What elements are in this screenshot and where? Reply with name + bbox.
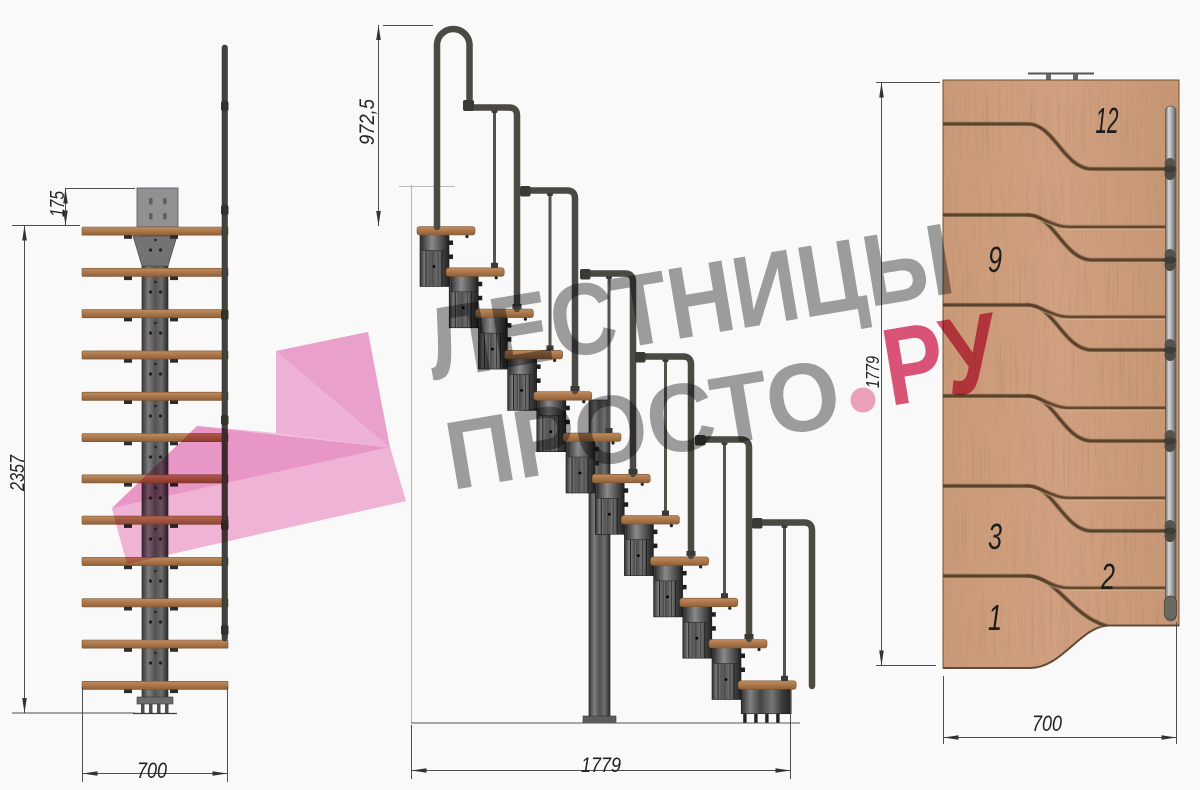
svg-text:1779: 1779 (581, 754, 621, 777)
svg-text:9: 9 (988, 239, 1002, 280)
svg-text:700: 700 (137, 758, 168, 783)
svg-text:РУ: РУ (874, 289, 1010, 430)
svg-text:700: 700 (1032, 711, 1063, 736)
svg-text:3: 3 (988, 516, 1002, 557)
svg-text:2357: 2357 (7, 454, 29, 492)
svg-text:1779: 1779 (863, 356, 883, 388)
svg-text:12: 12 (1096, 100, 1119, 141)
svg-text:175: 175 (47, 190, 69, 217)
svg-text:1: 1 (988, 597, 1002, 638)
svg-text:972,5: 972,5 (356, 99, 379, 145)
svg-text:2: 2 (1100, 556, 1115, 597)
